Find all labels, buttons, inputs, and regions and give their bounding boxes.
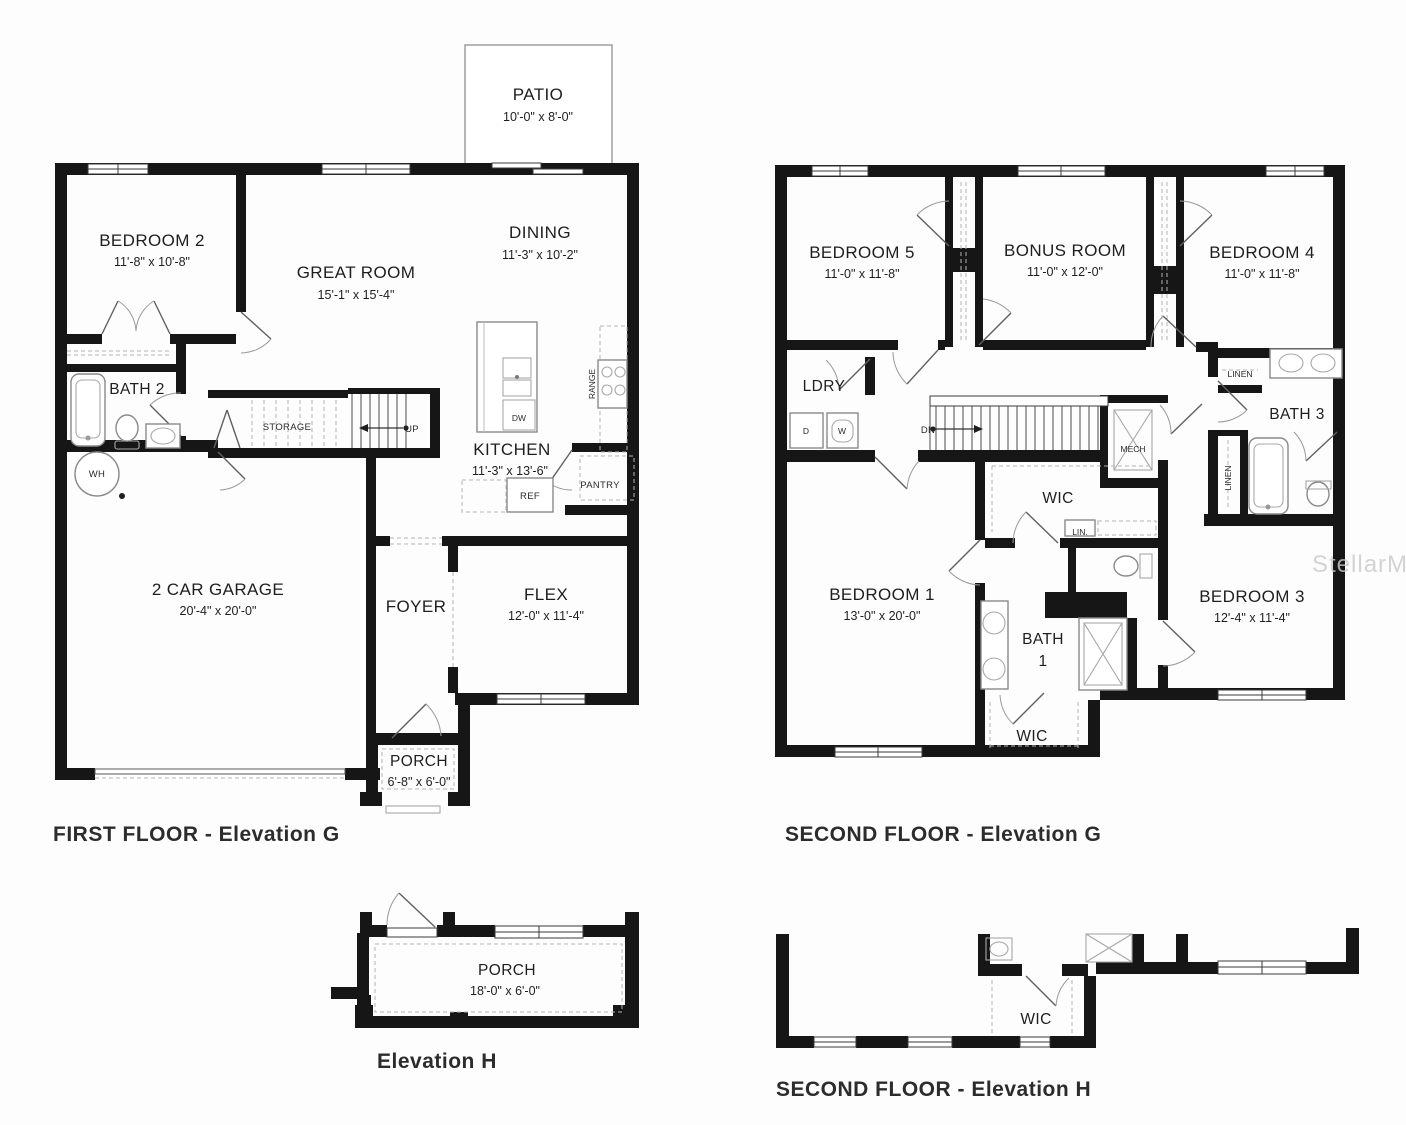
- floor-plan-canvas: PATIO 10'-0" x 8'-0" BEDROOM 2 11'-8" x …: [0, 0, 1406, 1125]
- toilet-icon: [1114, 554, 1152, 578]
- dn-label: DN: [921, 425, 935, 436]
- pantry-shelves: [580, 456, 634, 500]
- bath1-label-line2: 1: [1038, 653, 1047, 670]
- window: [322, 164, 410, 174]
- washer-label: W: [838, 426, 846, 436]
- window: [835, 747, 922, 757]
- mech-closet: [1114, 410, 1152, 470]
- kitchen-dims: 11'-3" x 13'-6": [472, 464, 548, 478]
- up-label: UP: [405, 424, 419, 435]
- bath3-label: BATH 3: [1269, 406, 1325, 423]
- counter: [462, 480, 506, 512]
- flex-label: FLEX: [524, 585, 568, 604]
- window: [1018, 166, 1105, 176]
- closet-rod: [67, 351, 172, 355]
- bath3-vanity: [1270, 349, 1342, 378]
- bonus-room-label: BONUS ROOM: [1004, 241, 1126, 260]
- bedroom3-label: BEDROOM 3: [1199, 587, 1305, 606]
- bath1-vanity: [981, 601, 1008, 689]
- range-icon: [598, 360, 627, 408]
- garage-door: [95, 768, 345, 780]
- porch-step: [386, 806, 440, 813]
- laundry-appliances: [790, 413, 858, 448]
- dw-label: DW: [512, 413, 526, 423]
- patio-dims: 10'-0" x 8'-0": [503, 110, 573, 124]
- bedroom5-dims: 11'-0" x 11'-8": [824, 267, 899, 281]
- window: [497, 694, 585, 704]
- window: [908, 1037, 952, 1047]
- porch-h-dims: 18'-0" x 6'-0": [470, 984, 540, 998]
- kitchen-label: KITCHEN: [473, 440, 550, 459]
- foyer-label: FOYER: [386, 597, 447, 616]
- wic-h-label: WIC: [1020, 1011, 1051, 1028]
- bath2-label: BATH 2: [109, 381, 165, 398]
- great-room-label: GREAT ROOM: [297, 263, 416, 282]
- watermark: StellarMLS: [1312, 551, 1406, 578]
- second-floor-h-walls: [776, 928, 1359, 1048]
- up-arrow: [359, 424, 368, 432]
- second-floor-plan: BEDROOM 5 11'-0" x 11'-8" BONUS ROOM 11'…: [775, 165, 1345, 846]
- bedroom5-label: BEDROOM 5: [809, 243, 915, 262]
- bedroom1-label: BEDROOM 1: [829, 585, 935, 604]
- great-room-dims: 15'-1" x 15'-4": [318, 288, 395, 302]
- garage-label: 2 CAR GARAGE: [152, 580, 284, 599]
- porch-dims: 6'-8" x 6'-0": [388, 775, 451, 789]
- patio-label: PATIO: [513, 85, 564, 104]
- patio-outline: [465, 45, 612, 167]
- bath1-label-line1: BATH: [1022, 631, 1064, 648]
- linen-hall-label: LINEN: [1227, 369, 1252, 379]
- bedroom2-dims: 11'-8" x 10'-8": [114, 255, 190, 269]
- dining-dims: 11'-3" x 10'-2": [502, 248, 578, 262]
- window: [1218, 690, 1306, 700]
- tub-icon: [1249, 438, 1288, 514]
- window: [1266, 166, 1324, 176]
- ref-label: REF: [520, 491, 540, 502]
- second-floor-h-plan: WIC SECOND FLOOR - Elevation H: [776, 928, 1359, 1101]
- porch-label: PORCH: [390, 753, 448, 770]
- lin-label: LIN.: [1072, 527, 1088, 537]
- porch-h-label: PORCH: [478, 962, 536, 979]
- window: [495, 926, 583, 938]
- shower-icon: [1086, 934, 1132, 962]
- window: [1218, 961, 1306, 974]
- shower-icon: [1079, 618, 1127, 690]
- wh-label: WH: [89, 469, 105, 480]
- linen-bath-label: LINEN: [1223, 465, 1233, 490]
- bonus-room-dims: 11'-0" x 12'-0": [1027, 265, 1103, 279]
- range-label: RANGE: [587, 369, 597, 400]
- toilet-icon: [1306, 481, 1331, 506]
- door-swing: [387, 893, 437, 937]
- bath3-tub: [1249, 438, 1288, 514]
- window: [1020, 1037, 1050, 1047]
- wic-lower-label: WIC: [1016, 728, 1047, 745]
- bedroom3-dims: 12'-4" x 11'-4": [1214, 611, 1290, 625]
- door-swing: [1026, 976, 1069, 1006]
- window: [814, 1037, 856, 1047]
- first-floor-caption: FIRST FLOOR - Elevation G: [53, 823, 340, 846]
- floor-plan-sheet: PATIO 10'-0" x 8'-0" BEDROOM 2 11'-8" x …: [0, 0, 1406, 1125]
- storage-label: STORAGE: [263, 422, 311, 433]
- stairs-down: [930, 396, 1108, 450]
- dryer-label: D: [803, 426, 809, 436]
- stairs-up: [352, 394, 409, 448]
- kitchen-island: [477, 322, 537, 432]
- bedroom4-dims: 11'-0" x 11'-8": [1224, 267, 1299, 281]
- bedroom4-label: BEDROOM 4: [1209, 243, 1315, 262]
- dining-label: DINING: [509, 223, 571, 242]
- window: [88, 164, 148, 174]
- second-floor-caption: SECOND FLOOR - Elevation G: [785, 823, 1101, 846]
- toilet-icon: [116, 415, 138, 441]
- flex-dims: 12'-0" x 11'-4": [508, 609, 584, 623]
- dn-arrow: [974, 425, 983, 433]
- elevation-h-caption: Elevation H: [377, 1050, 497, 1073]
- wic-bed1-label: WIC: [1042, 490, 1073, 507]
- bedroom1-dims: 13'-0" x 20'-0": [844, 609, 921, 623]
- mech-label: MECH: [1120, 444, 1145, 454]
- garage-dims: 20'-4" x 20'-0": [180, 604, 257, 618]
- bedroom2-label: BEDROOM 2: [99, 231, 205, 250]
- window: [812, 166, 868, 176]
- second-floor-h-caption: SECOND FLOOR - Elevation H: [776, 1078, 1091, 1101]
- elevation-h-plan: PORCH 18'-0" x 6'-0" Elevation H: [331, 893, 639, 1073]
- first-floor-plan: PATIO 10'-0" x 8'-0" BEDROOM 2 11'-8" x …: [53, 45, 639, 846]
- ldry-label: LDRY: [803, 378, 846, 395]
- pantry-label: PANTRY: [580, 480, 620, 491]
